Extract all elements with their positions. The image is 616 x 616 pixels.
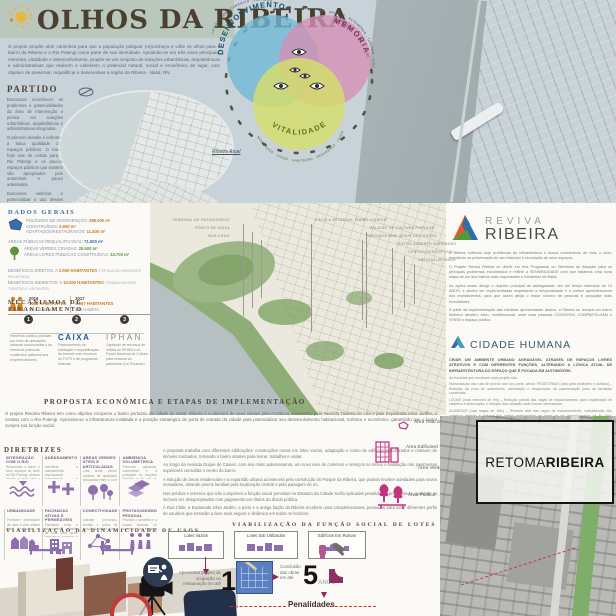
- top-band: OLHOS DA RIBEIRA O projeto propõe abrir …: [0, 0, 616, 203]
- blueprint-image: [236, 561, 273, 594]
- stat-value: 6.690 m²: [59, 224, 76, 229]
- penalty-label: Penalidades: [288, 600, 335, 609]
- venn-diagram: DESENVOLVIMENTO MEMÓRIA VITALIDADE ECONO…: [212, 0, 384, 162]
- map-label: PALÁCIO DE CULTURA POPULAR: [370, 226, 435, 230]
- callout-line: [414, 264, 415, 304]
- partido-paragraph: O primeiro desafio é enfrentar a baixa q…: [7, 135, 63, 188]
- map-label: PORTO DE NATAL: [160, 226, 230, 230]
- proposta-intro: O projeto Retoma Ribeira tem como objeti…: [5, 411, 437, 445]
- diretriz-desc: Incentivar o adensamento populacional ap…: [45, 465, 78, 479]
- bldg-maroon: [56, 557, 73, 591]
- diretriz-title: ÁREAS VERDES ÚTEIS E ARTICULADAS: [83, 456, 118, 469]
- diretriz-title: ADENSAMENTO: [45, 456, 78, 465]
- stat-value: 288.000 m²: [89, 218, 110, 223]
- map-label: PARÓQUIA BOM JESUS DAS DORES: [366, 234, 437, 238]
- diretriz-title: FACHADAS ATIVAS E PERMEÁVEIS: [45, 509, 78, 522]
- diretriz-title: PROTAGONISMO PESSOAL: [122, 509, 157, 518]
- partido-paragraph: Buscamos valorizar e potencializar o uso…: [7, 191, 63, 203]
- cidade-humana-intro: CRIAR UM AMBIENTE URBANO AGRADÁVEL ATRAV…: [449, 358, 612, 374]
- stat-label: ÁREAS LIVRES PÚBLICAS CONSTRUÍDAS:: [24, 252, 109, 257]
- down-arrow-icon: [321, 592, 327, 598]
- penalty-dash-right: [330, 606, 376, 607]
- step1-text: Apresentar projeto de ocupação ou restau…: [177, 570, 221, 587]
- teacher-icon: [142, 556, 174, 593]
- intro-text: O projeto propõe abrir caminhos para que…: [8, 44, 220, 82]
- dados-heading: DADOS GERAIS: [8, 209, 152, 216]
- step-number: 1: [24, 315, 33, 324]
- step-text: Captação de recursos de editais do IPHAN…: [106, 343, 148, 367]
- step-number: 3: [120, 315, 129, 324]
- right-arrow-icon: [273, 574, 279, 580]
- proposta-heading: PROPOSTA ECONÔMICA E ETAPAS DE IMPLEMENT…: [44, 398, 306, 406]
- area-label: Área Edificável :: [406, 445, 441, 450]
- cidade-humana-logo-icon: [449, 334, 467, 355]
- tiny-buildings-icon: [246, 542, 286, 551]
- reviva-paragraph: As ações visam atingir o objetivo princi…: [449, 284, 612, 305]
- stat-label: POLÍGONO DE INTERVENÇÃO:: [26, 218, 88, 223]
- lote-box: Lotes Sub Utilizados: [234, 531, 298, 559]
- building-grid-icon: [374, 438, 400, 469]
- stat-label: BENEFÍCIOS INDIRETOS:: [8, 280, 58, 285]
- step-number: 2: [72, 315, 81, 324]
- aerial-photo: [376, 0, 616, 203]
- stat-value: 2.500 HABITANTES: [59, 268, 97, 273]
- venn-caption: Ribeira Atual: [212, 149, 240, 155]
- plus-density-icon: [45, 479, 78, 502]
- map-label: RUA CHILE: [160, 234, 230, 238]
- stat-label: ÁREAS PÚBLICAS REQUALIFICADAS:: [8, 239, 83, 244]
- step-text: Parcerias público-privadas por meio de o…: [10, 334, 54, 362]
- retoma-logo-light: RETOMA: [485, 455, 546, 470]
- iphan-logo: IPHAN: [106, 333, 148, 342]
- map-label: TEATRO ALBERTO MARANHÃO: [396, 242, 456, 246]
- river-waves-icon: [6, 479, 40, 502]
- call gout-line: [243, 224, 244, 316]
- callout-line: [362, 240, 363, 320]
- reviva-logo-bottom: RIBEIRA: [485, 227, 560, 243]
- tree-icon: [8, 246, 21, 266]
- stat-value: + 10.000 HABITANTES: [60, 280, 104, 285]
- stat-value: 71.500 m²: [84, 239, 103, 244]
- callout-line: [311, 224, 312, 332]
- cidade-humana-title: CIDADE HUMANA: [470, 339, 571, 351]
- retoma-logo: RETOMARIBEIRA: [476, 420, 614, 504]
- lote-box: Lotes Vazios: [168, 531, 224, 559]
- diretriz-desc: Preservar gabaritos, volumetrias e a pai…: [122, 465, 157, 479]
- financiamento-section: MECANISMOS DE FINANCIAMENTO 1 Parcerias …: [8, 299, 150, 395]
- diretriz-title: URBANIDADE: [7, 509, 40, 518]
- diretriz-item: ADENSAMENTO Incentivar o adensamento pop…: [42, 456, 80, 506]
- polygon-small-icon: [398, 417, 409, 435]
- callout-line: [392, 248, 393, 314]
- partido-paragraph: Buscamos reconhecer os problemas e poten…: [7, 97, 63, 132]
- diretriz-title: CONECTIVIDADE: [83, 509, 118, 518]
- area-label: Área Pública :: [408, 493, 438, 498]
- stat-value: 11.400 m²: [87, 229, 106, 234]
- diretriz-item: ÁREAS VERDES ÚTEIS E ARTICULADAS Criar á…: [80, 456, 120, 506]
- reviva-paragraph: A partir da implementação das medidas ap…: [449, 308, 612, 324]
- diretriz-title: INTEGRAÇÃO COM O RIO: [6, 456, 40, 465]
- presentation-board: OLHOS DA RIBEIRA O projeto propõe abrir …: [0, 0, 616, 616]
- caixa-logo: CAIXA: [58, 333, 100, 342]
- diretriz-item: AMBIÊNCIA VOLUMÉTRICA Preservar gabarito…: [119, 456, 159, 506]
- construction-tools-icon: [315, 543, 349, 598]
- partido-section: PARTIDO Buscamos reconhecer os problemas…: [7, 84, 63, 203]
- map-label: ESCOLA ESTADUAL ISABEL GONDIM: [315, 218, 387, 222]
- diretrizes-heading: DIRETRIZES: [4, 446, 159, 454]
- lote-box-label: Edifícios Em Ruínas: [311, 534, 363, 539]
- reviva-logo-top: REVIVA: [485, 217, 560, 227]
- reviva-logo-icon: [449, 212, 481, 247]
- stat-value: 34.700 m²: [110, 252, 129, 257]
- diretriz-desc: Reconectar o bairro e seus espaços de la…: [6, 465, 40, 479]
- callout-line: [261, 240, 262, 298]
- retoma-logo-bold: RIBEIRA: [546, 455, 605, 470]
- sun-icon: [8, 4, 34, 35]
- step-text: Financiamento de habitação e requalifica…: [58, 343, 100, 367]
- cidade-humana-lead: As medidas que envolvem esse projeto são…: [449, 376, 612, 380]
- lote-box-label: Lotes Sub Utilizados: [237, 534, 295, 539]
- financiamento-heading: MECANISMOS DE FINANCIAMENTO: [8, 299, 150, 315]
- park-bench-icon: [376, 482, 408, 515]
- reviva-section: REVIVA RIBEIRA A Ribeira enfrenta hoje p…: [449, 212, 612, 327]
- callout-line: [366, 232, 367, 328]
- reviva-paragraph: A Ribeira enfrenta hoje problemas de inf…: [449, 251, 612, 262]
- funcao-social-heading: VIABILIZAÇÃO DA FUNÇÃO SOCIAL DE LOTES: [232, 522, 437, 528]
- bldg-tan: [18, 564, 90, 616]
- callout-line: [252, 232, 253, 308]
- stat-label: CONSTRUÍDOS:: [26, 224, 58, 229]
- stat-label: ADAPTADOS/RESTAURADOS:: [26, 229, 85, 234]
- flow-connector-down: [205, 557, 206, 569]
- stat-label: ÁREAS VERDES CRIADAS:: [24, 246, 78, 251]
- partido-heading: PARTIDO: [7, 84, 63, 94]
- green-trees-icon: [83, 483, 118, 506]
- stat-value: 25.500 m²: [79, 246, 98, 251]
- diretriz-desc: Criar áreas verdes públicas de qualidade…: [83, 469, 118, 483]
- iso-blocks-icon: [122, 479, 157, 502]
- diretriz-title: AMBIÊNCIA VOLUMÉTRICA: [122, 456, 157, 465]
- reviva-paragraph: O Projeto Reviva Ribeira se divide em tr…: [449, 265, 612, 281]
- map-label: TERMINAL DE PASSAGEIROS: [160, 218, 230, 222]
- lote-box-label: Lotes Vazios: [171, 534, 221, 539]
- polygon-icon: [8, 218, 23, 236]
- tiny-buildings-icon: [178, 542, 214, 551]
- cidade-humana-bullet: Humanização das ruas de acordo com seu p…: [449, 382, 612, 396]
- stat-label: BENEFÍCIOS DIRETOS: A: [8, 268, 58, 273]
- penalty-dash-left: [230, 606, 286, 607]
- callout-line: [404, 256, 405, 308]
- retoma-photo: RETOMARIBEIRA: [440, 416, 616, 616]
- map-label: CENTRO DESPORTIVO: [408, 250, 453, 254]
- cidade-humana-bullet: LOCAIS (ruas menores de 9m) – Redução pa…: [449, 398, 612, 407]
- diretriz-item: INTEGRAÇÃO COM O RIO Reconectar o bairro…: [4, 456, 42, 506]
